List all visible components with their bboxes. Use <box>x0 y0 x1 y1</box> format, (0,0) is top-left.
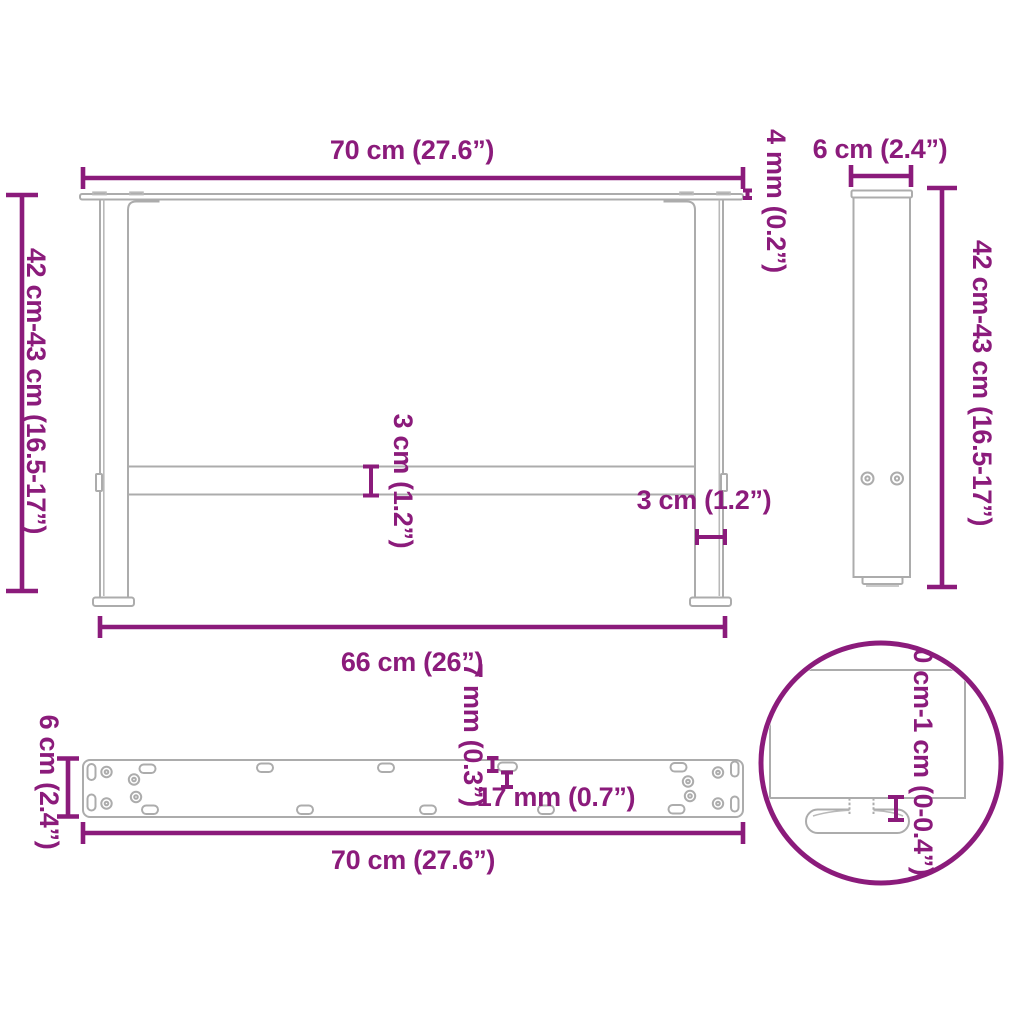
mounting-plate-body <box>83 760 743 817</box>
dimension-diagram: 70 cm (27.6”) 4 mm (0.2”) 42 cm-43 cm (1… <box>0 0 1024 1024</box>
foot-detail-drawing <box>761 643 1001 883</box>
right-foot <box>690 598 731 607</box>
front-view-dimensions <box>6 167 752 638</box>
plate-length-dimension <box>83 822 743 844</box>
tabletop-thickness-dimension <box>743 191 752 199</box>
plate-length-label: 70 cm (27.6”) <box>331 845 495 875</box>
tabletop-thickness-label: 4 mm (0.2”) <box>761 129 791 273</box>
side-height-dimension <box>927 188 957 587</box>
side-leg-foot <box>863 577 903 584</box>
side-leg-top-cap <box>852 191 913 198</box>
left-foot <box>93 598 134 607</box>
crossbar-thickness-label: 3 cm (1.2”) <box>388 414 418 549</box>
side-depth-label: 6 cm (2.4”) <box>813 134 948 164</box>
side-view-drawing <box>852 191 913 587</box>
mounting-plate-drawing <box>83 760 743 817</box>
adjustment-range-label: 0 cm-1 cm (0-0.4”) <box>908 648 938 875</box>
side-height-label: 42 cm-43 cm (16.5-17”) <box>967 240 997 526</box>
base-span-dimension <box>100 616 725 638</box>
leg-width-label: 3 cm (1.2”) <box>637 485 772 515</box>
left-leg-bracket <box>128 200 159 598</box>
front-width-label: 70 cm (27.6”) <box>330 135 494 165</box>
diagram-canvas: 70 cm (27.6”) 4 mm (0.2”) 42 cm-43 cm (1… <box>0 0 1024 1024</box>
top-width-dimension <box>83 167 743 189</box>
right-leg-bracket <box>665 200 696 598</box>
slot-length-label: 17 mm (0.7”) <box>477 782 635 812</box>
foot-stem-fill <box>850 797 874 812</box>
side-leg-body <box>854 191 911 578</box>
side-depth-dimension <box>851 165 911 187</box>
crossbar-thickness-dimension <box>363 467 379 496</box>
leg-width-dimension <box>697 529 725 545</box>
front-tabletop-plate <box>80 194 743 200</box>
plate-depth-label: 6 cm (2.4”) <box>34 715 64 850</box>
front-height-label: 42 cm-43 cm (16.5-17”) <box>21 248 51 534</box>
left-crossbar-tab <box>96 474 102 491</box>
